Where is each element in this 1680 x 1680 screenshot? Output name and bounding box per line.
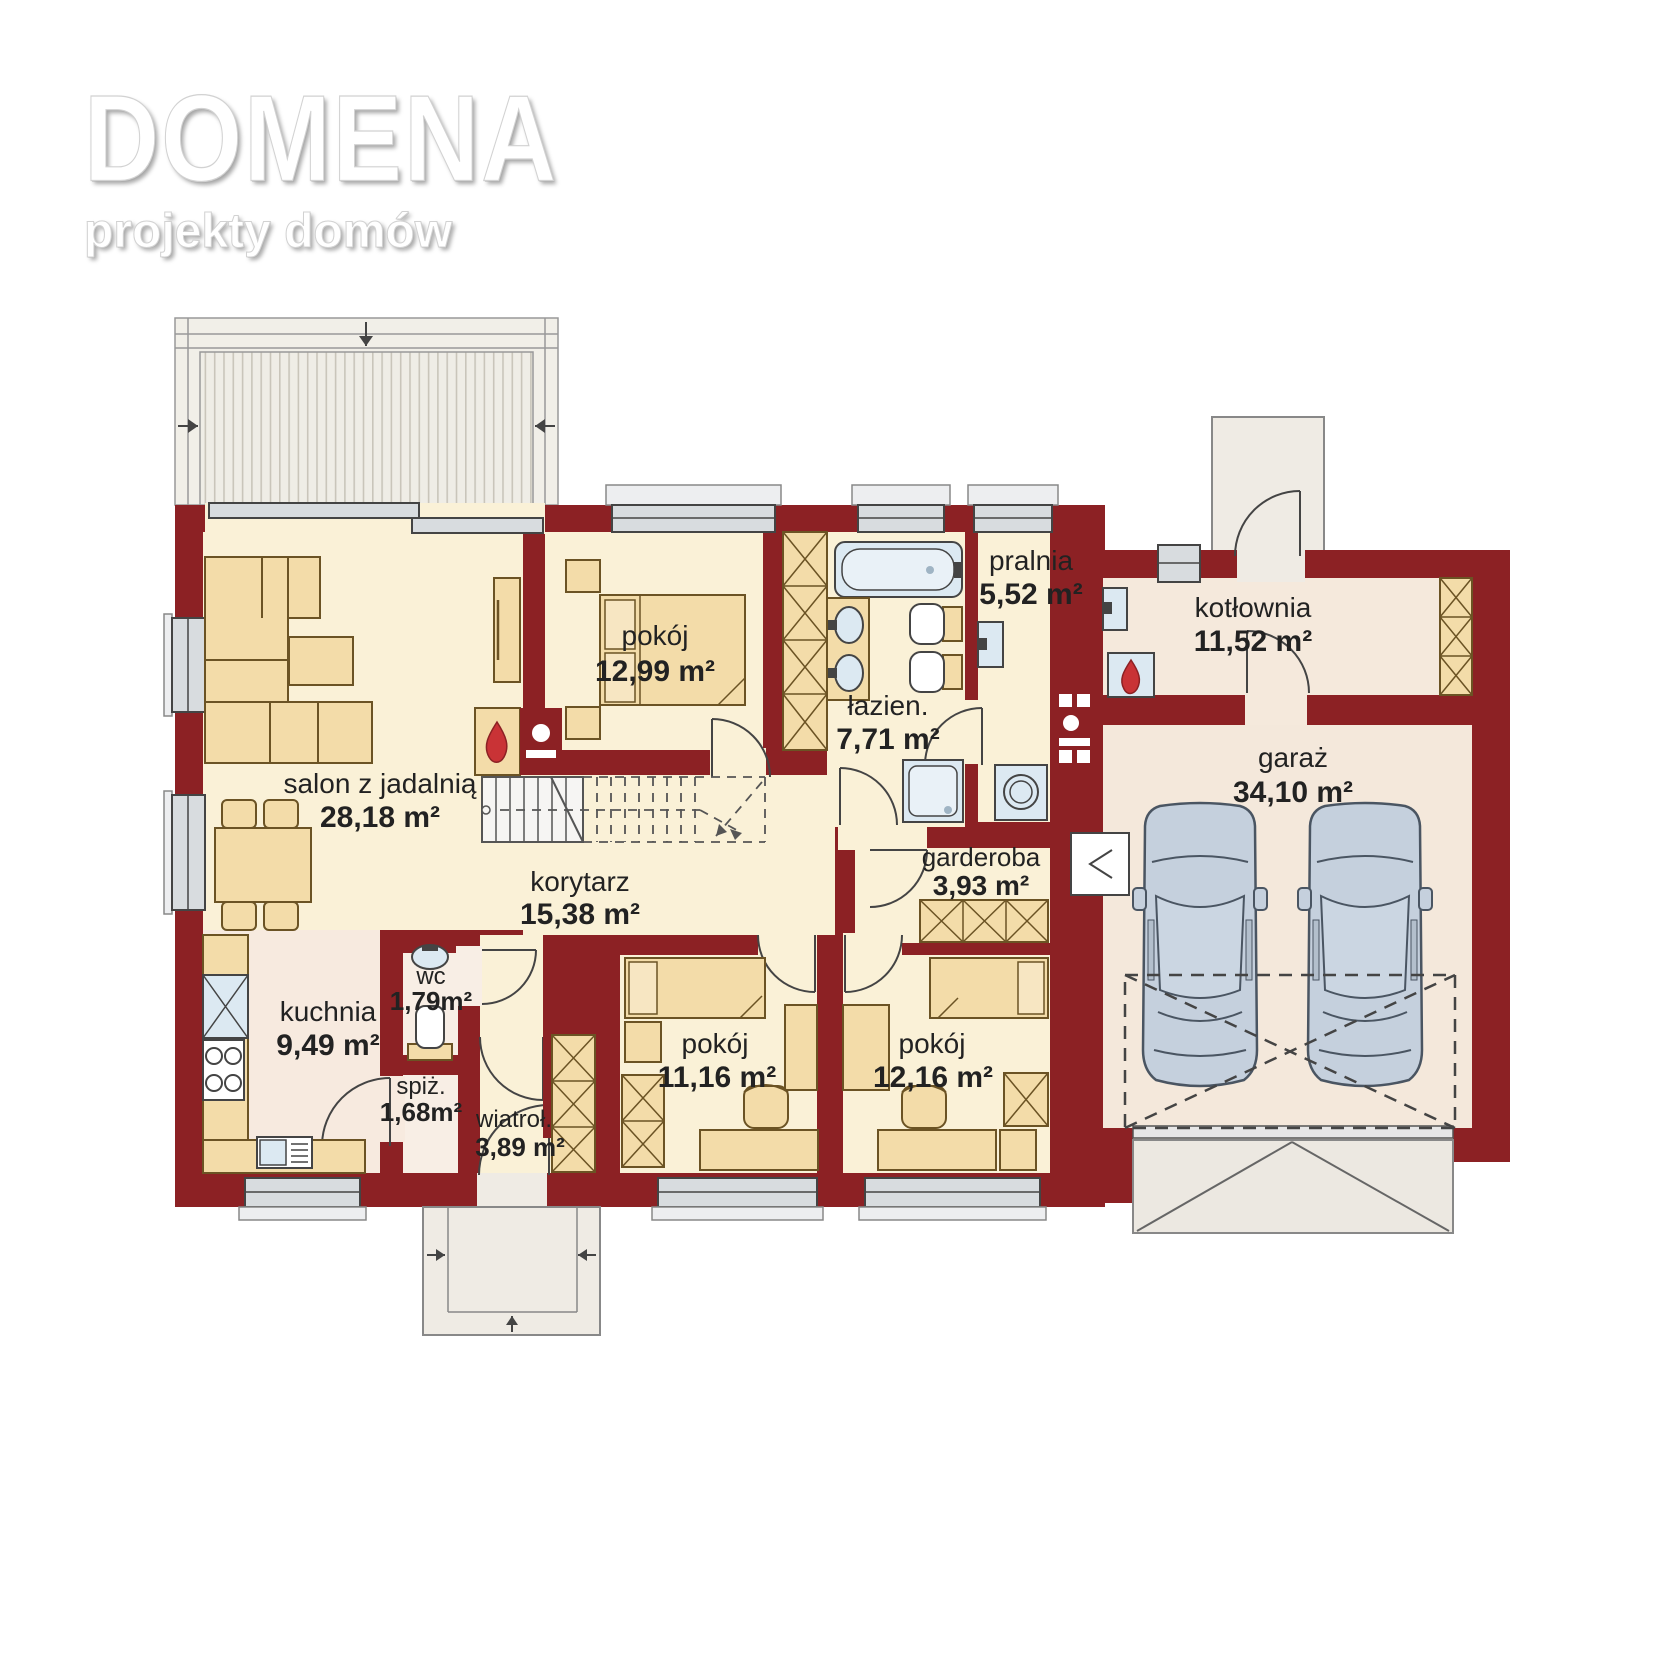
wardrobe-garderoba <box>920 900 1048 942</box>
shower <box>903 760 963 822</box>
room-area-kotlownia: 11,52 m² <box>1194 625 1312 658</box>
page: DOMENA projekty domów <box>0 0 1680 1680</box>
room-area-pralnia: 5,52 m² <box>979 578 1082 611</box>
wall-garage-jog <box>1073 1128 1133 1203</box>
dining-set <box>215 800 311 930</box>
room-area-korytarz: 15,38 m² <box>520 898 640 931</box>
fireplace <box>475 708 562 775</box>
room-area-wc: 1,79m² <box>390 986 473 1016</box>
room-label-kuchnia: kuchnia <box>280 996 377 1027</box>
room-area-kuchnia: 9,49 m² <box>276 1029 379 1062</box>
room-label-korytarz: korytarz <box>530 866 630 897</box>
kitchen-appliance <box>257 1137 312 1168</box>
room-label-lazienka: łazien. <box>848 690 929 721</box>
room-label-salon: salon z jadalnią <box>283 768 476 799</box>
room-area-garderoba: 3,93 m² <box>933 870 1030 901</box>
garage-apron <box>1133 1126 1453 1233</box>
entry-porch-north <box>1212 417 1324 562</box>
room-area-lazienka: 7,71 m² <box>836 723 939 756</box>
room-area-pokoj-3: 12,16 m² <box>873 1061 993 1094</box>
vanity-sinks <box>827 598 869 700</box>
room-label-garaz: garaż <box>1258 742 1328 773</box>
garage-side-door <box>1071 833 1129 895</box>
car-icon <box>1298 803 1432 1086</box>
room-label-garderoba: garderoba <box>922 842 1041 872</box>
room-area-spizarnia: 1,68m² <box>380 1097 463 1127</box>
room-area-pokoj-2: 11,16 m² <box>658 1061 776 1094</box>
bidet <box>910 652 962 692</box>
tv-cabinet <box>494 578 520 682</box>
room-area-salon: 28,18 m² <box>320 801 440 834</box>
wardrobe-bedroom <box>783 532 827 750</box>
room-area-garaz: 34,10 m² <box>1233 776 1353 809</box>
terrace <box>175 318 558 505</box>
room-area-pokoj-1: 12,99 m² <box>595 655 715 688</box>
bathtub <box>835 542 962 597</box>
washing-machine <box>995 765 1047 820</box>
entry-porch-south <box>423 1207 600 1335</box>
car-icon <box>1133 803 1267 1086</box>
floor-plan: salon z jadalnią 28,18 m² pokój 12,99 m²… <box>0 0 1680 1680</box>
coffee-table <box>289 637 353 685</box>
wardrobe-kotlownia <box>1440 578 1472 695</box>
toilet <box>910 604 962 644</box>
room-area-wiatrolap: 3,89 m² <box>475 1132 565 1162</box>
room-label-wiatrolap: wiatroł. <box>475 1106 552 1133</box>
laundry-sink <box>978 622 1003 667</box>
room-label-kotlownia: kotłownia <box>1195 592 1312 623</box>
room-label-pokoj-1: pokój <box>622 620 689 651</box>
room-label-pokoj-3: pokój <box>899 1028 966 1059</box>
room-label-spizarnia: spiż. <box>396 1073 445 1100</box>
boiler <box>1108 653 1154 697</box>
room-label-pokoj-2: pokój <box>682 1028 749 1059</box>
room-label-pralnia: pralnia <box>989 545 1073 576</box>
